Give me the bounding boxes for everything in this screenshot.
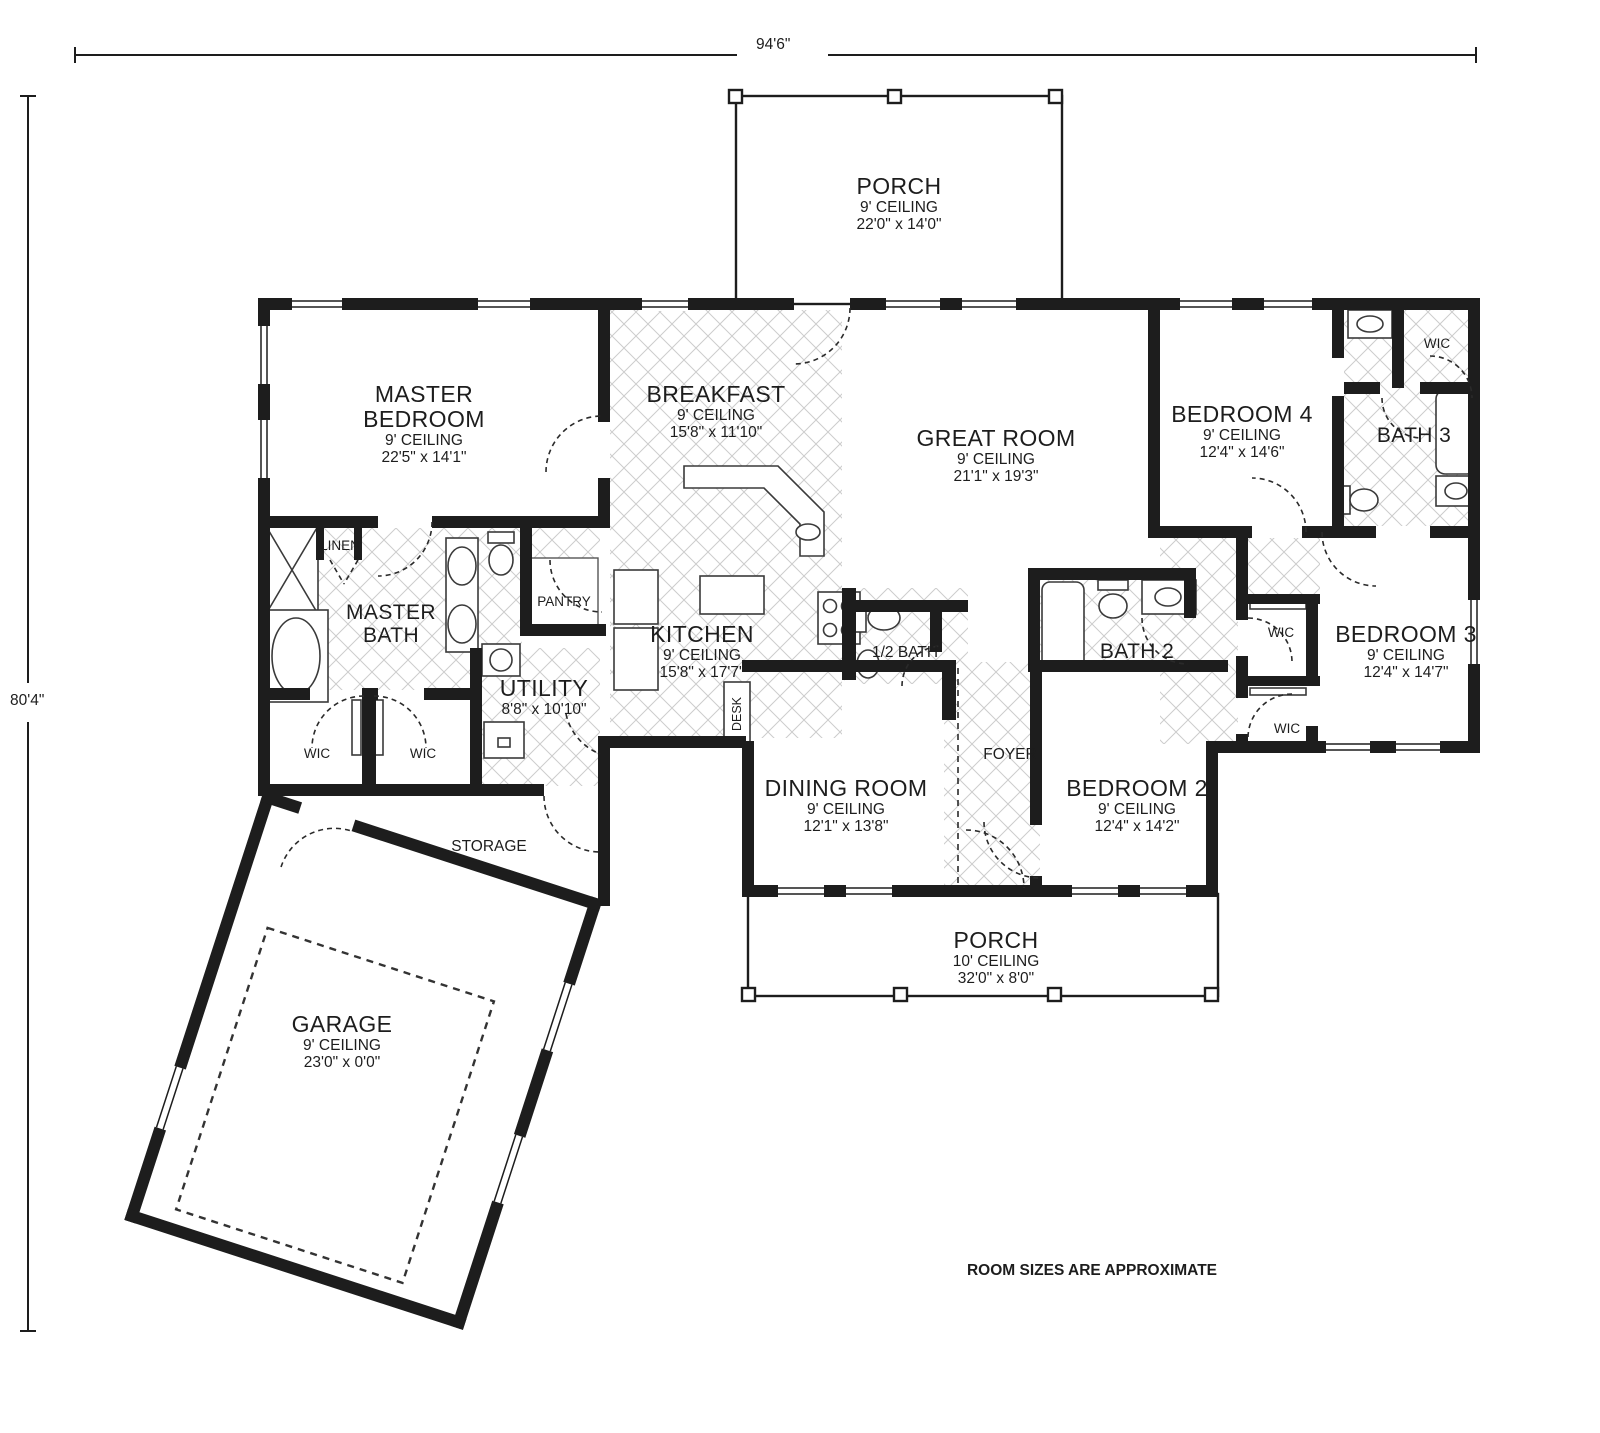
room-label-dining: DINING ROOM 9' CEILING 12'1" x 13'8" bbox=[765, 776, 928, 836]
room-label-bedroom3: BEDROOM 3 9' CEILING 12'4" x 14'7" bbox=[1335, 622, 1477, 682]
room-label-linen: LINEN bbox=[320, 538, 360, 553]
garage-door-arc bbox=[281, 814, 352, 885]
room-label-utility: UTILITY 8'8" x 10'10" bbox=[500, 676, 588, 718]
room-label-garage: GARAGE 9' CEILING 23'0" x 0'0" bbox=[292, 1012, 393, 1072]
room-label-wic-master-right: WIC bbox=[410, 746, 436, 761]
room-label-porch-top: PORCH 9' CEILING 22'0" x 14'0" bbox=[856, 174, 941, 234]
desk-label: DESK bbox=[730, 697, 744, 731]
room-label-bedroom2: BEDROOM 2 9' CEILING 12'4" x 14'2" bbox=[1066, 776, 1208, 836]
room-label-wic-master-left: WIC bbox=[304, 746, 330, 761]
room-label-bedroom4: BEDROOM 4 9' CEILING 12'4" x 14'6" bbox=[1171, 402, 1313, 462]
room-label-wic-bed3-upper: WIC bbox=[1268, 625, 1294, 640]
overall-width-dimension: 94'6" bbox=[756, 36, 790, 54]
room-sizes-note: ROOM SIZES ARE APPROXIMATE bbox=[967, 1262, 1217, 1280]
room-label-porch-bottom: PORCH 10' CEILING 32'0" x 8'0" bbox=[953, 928, 1040, 988]
floor-plan-drawing bbox=[0, 0, 1600, 1433]
room-label-bath2: BATH 2 bbox=[1100, 640, 1174, 664]
floor-plan: 94'6" 80'4" PORCH 9' CEILING 22'0" x 14'… bbox=[0, 0, 1600, 1433]
car-pad bbox=[176, 928, 494, 1283]
room-label-foyer: FOYER bbox=[983, 746, 1036, 764]
room-label-wic-bed3-lower: WIC bbox=[1274, 721, 1300, 736]
overall-height-dimension: 80'4" bbox=[10, 692, 44, 710]
room-label-great-room: GREAT ROOM 9' CEILING 21'1" x 19'3" bbox=[916, 426, 1075, 486]
room-label-wic-top-right: WIC bbox=[1424, 336, 1450, 351]
room-label-master-bath: MASTER BATH bbox=[341, 602, 441, 647]
room-label-master-bedroom: MASTER BEDROOM 9' CEILING 22'5" x 14'1" bbox=[358, 382, 490, 466]
room-label-breakfast: BREAKFAST 9' CEILING 15'8" x 11'10" bbox=[646, 382, 785, 442]
room-label-storage: STORAGE bbox=[451, 838, 527, 856]
room-label-pantry: PANTRY bbox=[537, 594, 591, 609]
room-label-bath3: BATH 3 bbox=[1377, 424, 1451, 448]
room-label-kitchen: KITCHEN 9' CEILING 15'8" x 17'7" bbox=[650, 622, 754, 682]
room-label-half-bath: 1/2 BATH bbox=[872, 644, 938, 662]
